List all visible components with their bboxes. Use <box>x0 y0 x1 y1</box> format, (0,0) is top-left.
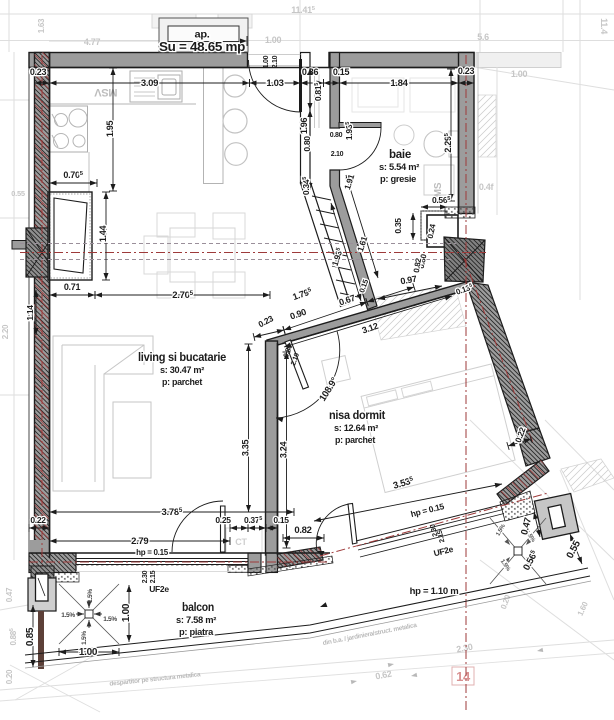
svg-text:0.85: 0.85 <box>25 627 36 646</box>
svg-text:0.80: 0.80 <box>330 132 343 139</box>
svg-text:2.15: 2.15 <box>150 570 157 583</box>
svg-text:MSV: MSV <box>94 86 118 98</box>
svg-text:s: 7.58 m²: s: 7.58 m² <box>176 615 216 625</box>
svg-text:0.71: 0.71 <box>64 282 81 292</box>
svg-text:5.6: 5.6 <box>477 32 489 42</box>
svg-text:balcon: balcon <box>182 600 214 614</box>
svg-text:0.23: 0.23 <box>30 67 47 77</box>
svg-text:1.14: 1.14 <box>25 305 35 321</box>
svg-text:UF2e: UF2e <box>149 584 169 594</box>
svg-text:1.5%: 1.5% <box>61 612 75 619</box>
svg-text:0.35: 0.35 <box>393 218 403 234</box>
svg-text:0.4f: 0.4f <box>479 182 495 192</box>
svg-text:3.09: 3.09 <box>141 78 158 89</box>
svg-text:2.10: 2.10 <box>331 151 344 158</box>
svg-text:2.30: 2.30 <box>142 570 149 583</box>
svg-text:Su = 48.65 mp: Su = 48.65 mp <box>159 39 245 54</box>
svg-text:1.00: 1.00 <box>265 35 282 45</box>
svg-text:1.00: 1.00 <box>263 55 270 68</box>
svg-text:0.82: 0.82 <box>294 525 311 536</box>
svg-text:0.15: 0.15 <box>333 67 350 77</box>
svg-text:4.77: 4.77 <box>84 37 101 47</box>
svg-text:CT: CT <box>235 537 247 547</box>
svg-text:2.79: 2.79 <box>131 536 148 547</box>
svg-text:s: 12.64 m²: s: 12.64 m² <box>334 423 378 433</box>
svg-text:0.23: 0.23 <box>458 66 475 76</box>
svg-text:0.47: 0.47 <box>5 587 14 602</box>
svg-text:baie: baie <box>389 147 412 161</box>
svg-text:0.15: 0.15 <box>273 515 289 525</box>
svg-text:p: parchet: p: parchet <box>162 377 202 387</box>
svg-text:p: parchet: p: parchet <box>335 435 375 445</box>
svg-text:1.00: 1.00 <box>511 69 528 79</box>
svg-text:2.10: 2.10 <box>272 55 279 68</box>
svg-text:1.00: 1.00 <box>121 603 132 622</box>
svg-text:11.4: 11.4 <box>599 18 609 34</box>
svg-text:0.22: 0.22 <box>30 515 46 525</box>
svg-text:1.5%: 1.5% <box>87 589 94 603</box>
svg-text:1.44: 1.44 <box>98 226 108 243</box>
svg-text:0.25: 0.25 <box>215 515 231 525</box>
svg-text:1.95: 1.95 <box>105 121 115 138</box>
svg-text:s: 30.47 m²: s: 30.47 m² <box>160 365 204 375</box>
svg-text:s: 5.54 m²: s: 5.54 m² <box>379 162 419 172</box>
svg-text:0.20: 0.20 <box>5 669 14 684</box>
svg-text:0.55: 0.55 <box>11 189 25 198</box>
svg-text:1.00: 1.00 <box>79 647 98 658</box>
svg-text:p: piatra: p: piatra <box>179 627 214 637</box>
svg-text:3.35: 3.35 <box>241 440 251 457</box>
svg-text:2.20: 2.20 <box>1 324 10 339</box>
svg-text:3.24: 3.24 <box>279 442 289 459</box>
svg-text:1.5%: 1.5% <box>103 616 117 623</box>
svg-text:living si bucatarie: living si bucatarie <box>138 350 227 364</box>
svg-text:0.80: 0.80 <box>302 136 312 152</box>
svg-text:1.63: 1.63 <box>37 18 46 33</box>
svg-text:1.03: 1.03 <box>266 78 283 89</box>
svg-text:hp = 1.10 m: hp = 1.10 m <box>410 586 459 597</box>
svg-text:1.96: 1.96 <box>299 118 309 135</box>
svg-text:p: gresie: p: gresie <box>380 174 416 184</box>
svg-text:1.5%: 1.5% <box>81 631 88 645</box>
svg-text:14: 14 <box>456 669 471 684</box>
svg-text:nisa dormit: nisa dormit <box>329 408 385 422</box>
svg-text:hp = 0.15: hp = 0.15 <box>136 548 169 557</box>
svg-text:1.84: 1.84 <box>390 78 408 89</box>
